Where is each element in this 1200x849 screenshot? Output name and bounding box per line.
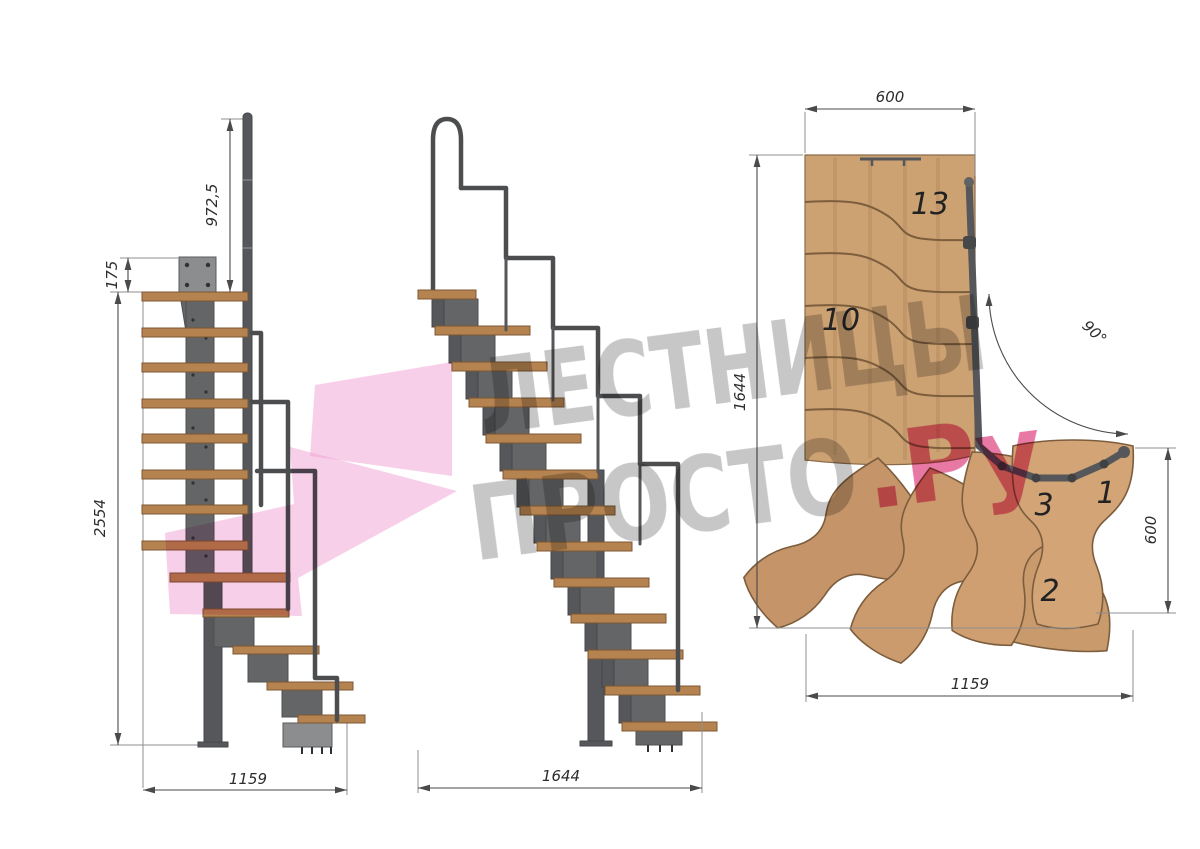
watermark-line2-pink: .Ру	[857, 391, 1049, 533]
dim-footprint: 1159	[229, 770, 267, 788]
lower-steps-side	[203, 609, 365, 754]
bottom-base-block	[283, 723, 332, 747]
dim-rail-height: 972,5	[203, 184, 221, 227]
base-plate-side	[198, 742, 228, 747]
technical-drawing: 972,5 175 2554 1159	[0, 0, 1200, 849]
step-label-2: 2	[1040, 574, 1059, 609]
mounting-plate	[179, 257, 216, 293]
dim-front-width: 1644	[542, 767, 580, 785]
dim-plan-top-width: 600	[876, 88, 905, 106]
dim-total-height: 2554	[91, 499, 109, 537]
stair-drawing-sheet: 972,5 175 2554 1159	[0, 0, 1200, 849]
dim-turn-angle: 90°	[1079, 317, 1111, 348]
step-label-13: 13	[911, 187, 949, 222]
dim-plate-offset: 175	[103, 261, 121, 290]
base-plate-front	[580, 741, 612, 746]
step-label-1: 1	[1096, 476, 1115, 511]
handrail-hoop	[433, 119, 461, 292]
dim-plan-right-depth: 600	[1142, 516, 1160, 545]
dim-plan-bottom-width: 1159	[951, 675, 989, 693]
